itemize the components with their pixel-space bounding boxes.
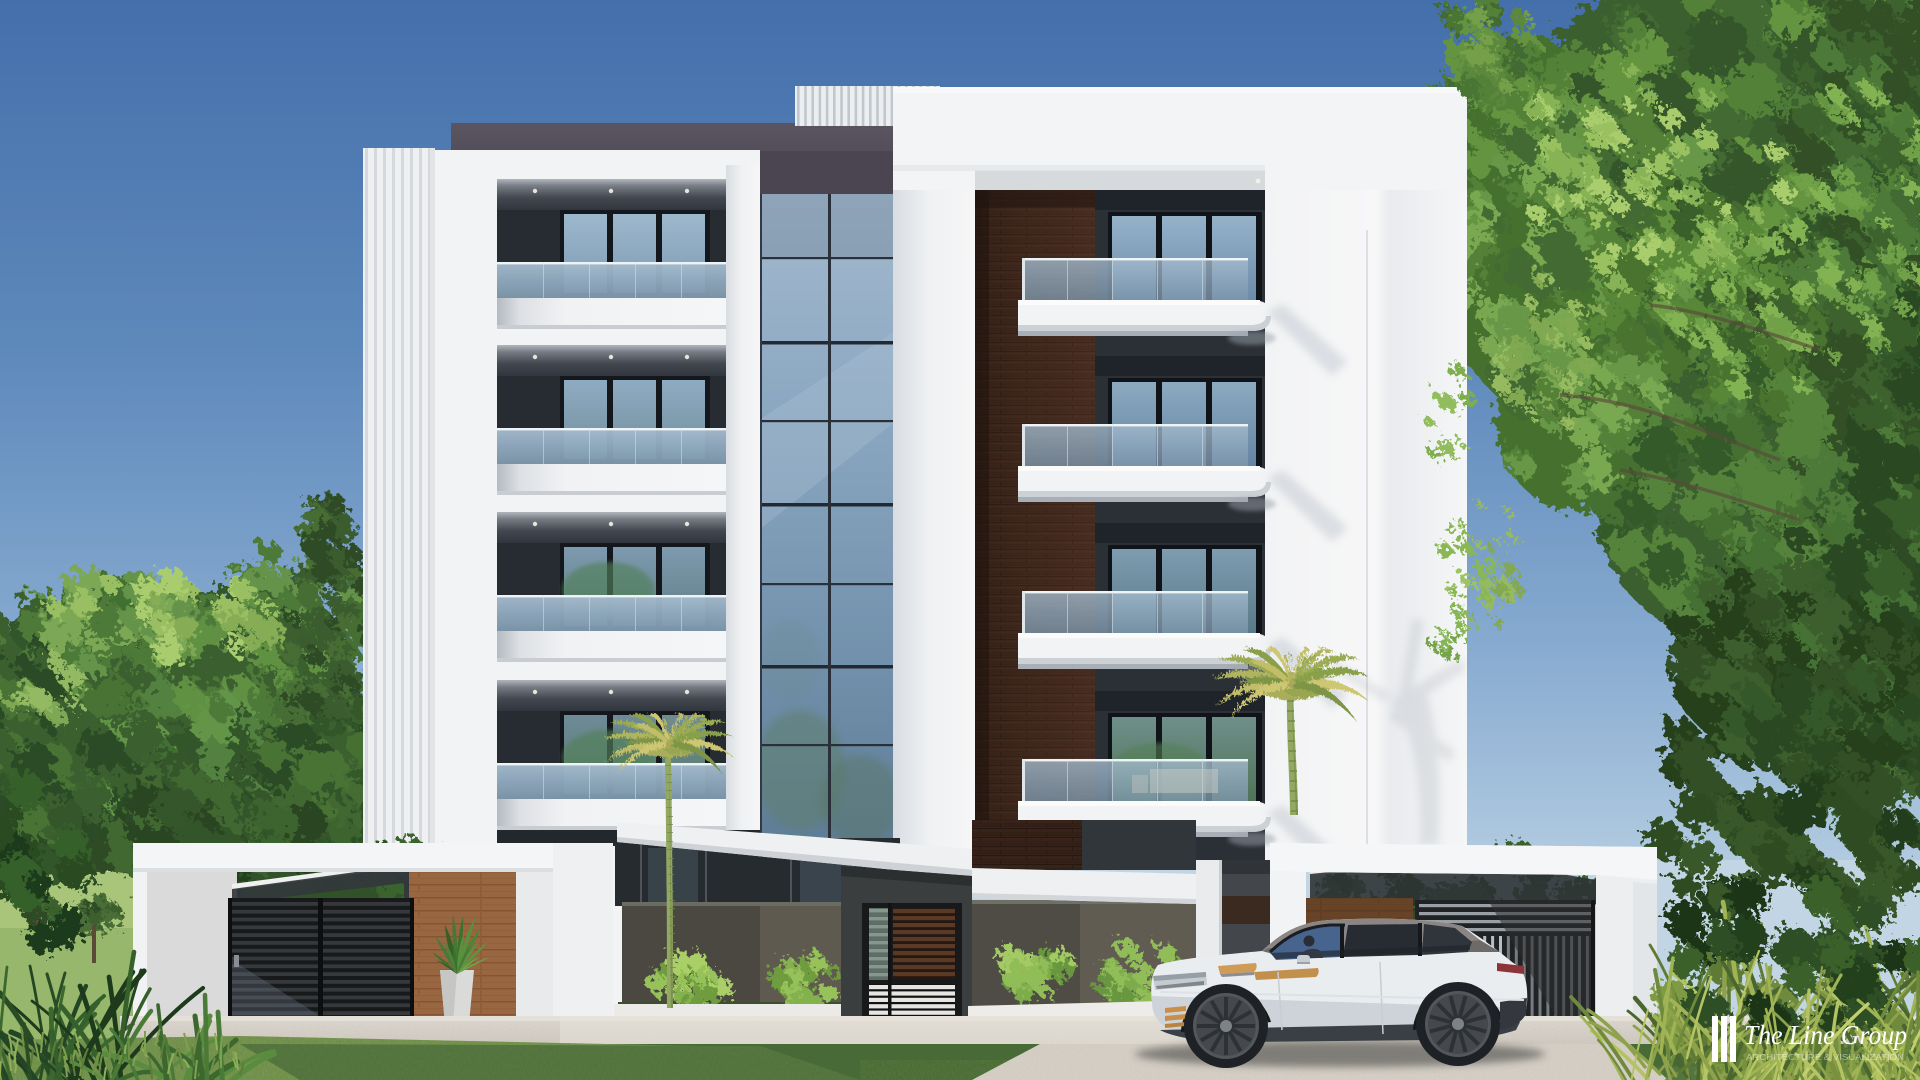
- svg-text:The Line Group: The Line Group: [1744, 1020, 1907, 1050]
- svg-text:ARCHITECTURE & VISUALIZATION: ARCHITECTURE & VISUALIZATION: [1746, 1053, 1904, 1062]
